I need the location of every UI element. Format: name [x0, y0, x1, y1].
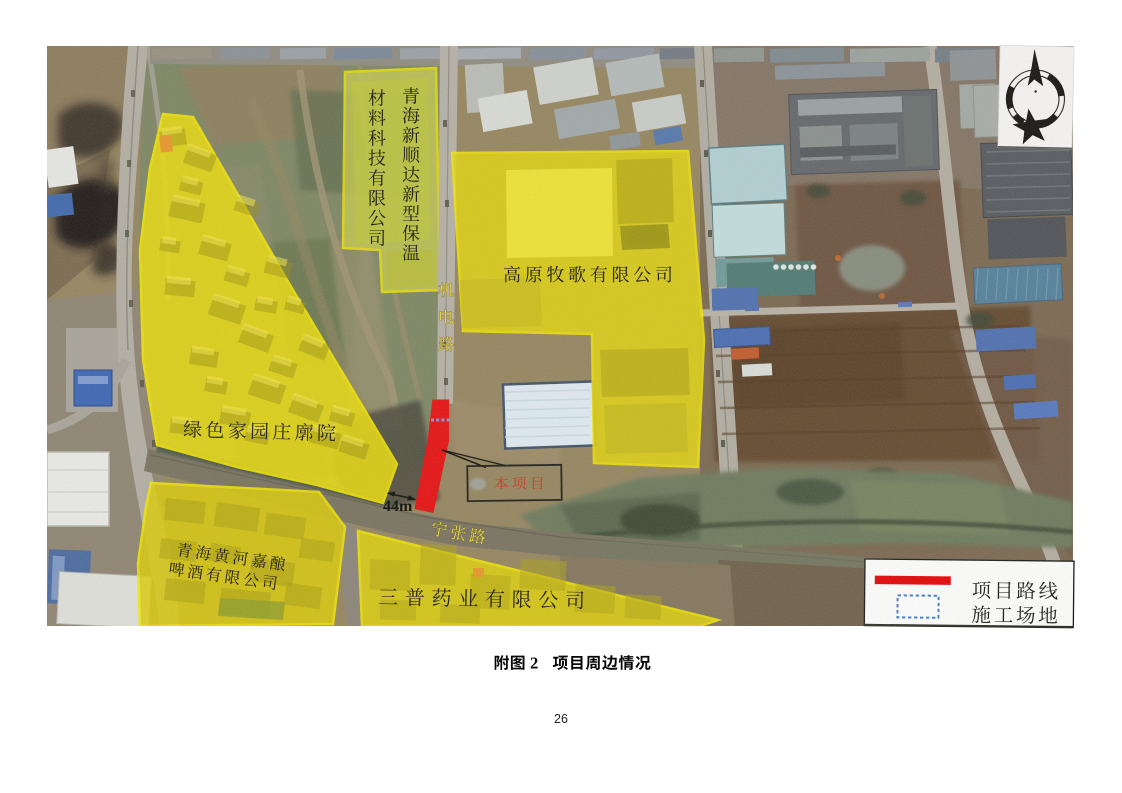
svg-text:2: 2 [530, 654, 538, 673]
svg-text:26: 26 [554, 712, 568, 726]
